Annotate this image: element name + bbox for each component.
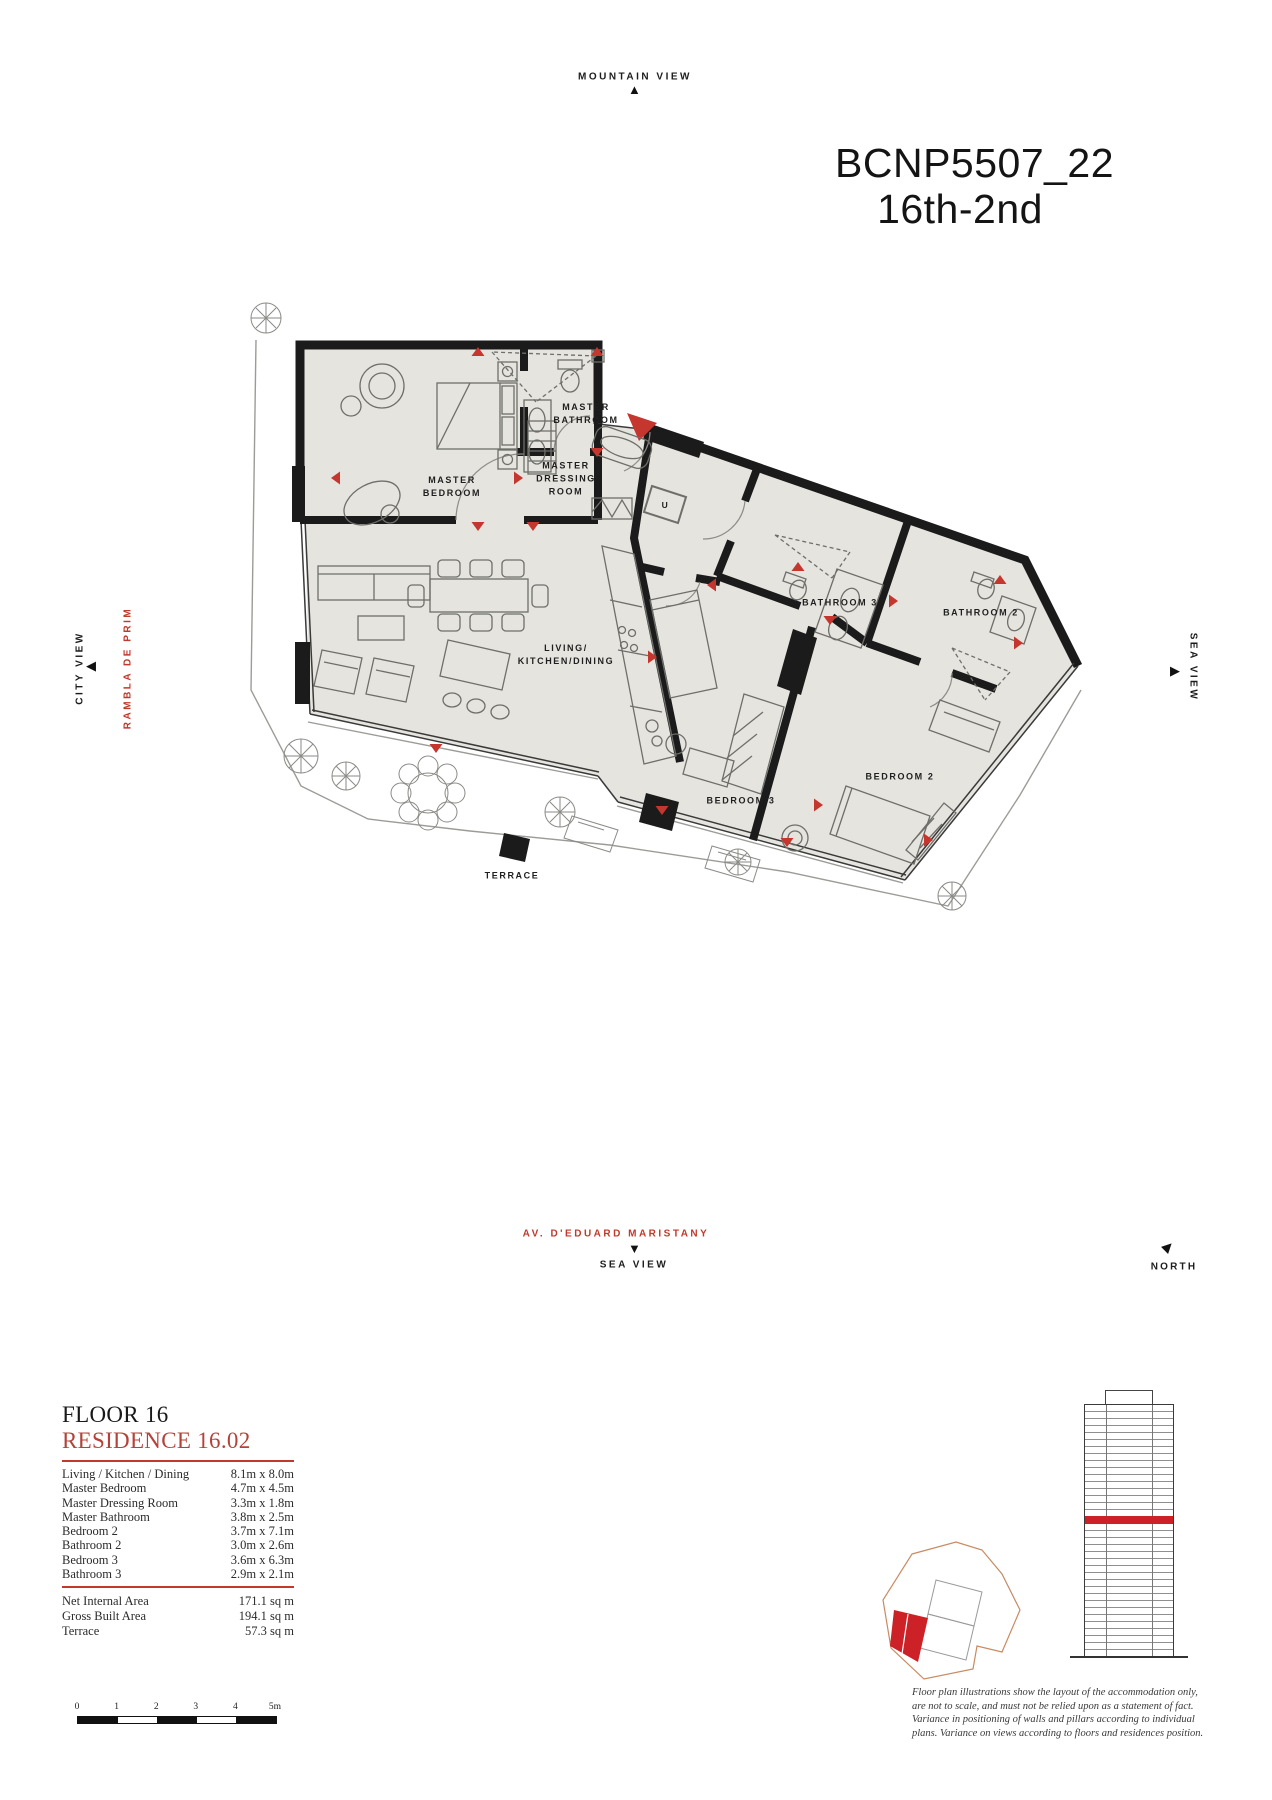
room-label-master-dressing-room: MASTER DRESSING ROOM [536, 459, 596, 498]
residence-info-panel: FLOOR 16 RESIDENCE 16.02 Living / Kitche… [62, 1402, 294, 1639]
disclaimer-text: Floor plan illustrations show the layout… [912, 1686, 1214, 1741]
scale-bar: 0 1 2 3 4 5m [77, 1702, 275, 1726]
tower-body [1084, 1404, 1174, 1658]
room-label-master-bathroom: MASTER BATHROOM [553, 401, 618, 427]
av-eduard-maristany-label: AV. D'EDUARD MARISTANY [523, 1229, 710, 1240]
area-row: Gross Built Area194.1 sq m [62, 1609, 294, 1624]
room-label-terrace: TERRACE [485, 869, 540, 882]
room-label-living-kitchen-dining: LIVING/ KITCHEN/DINING [518, 642, 614, 668]
sea-view-bottom-arrow-icon: ▼ [628, 1242, 641, 1255]
dimension-table: Living / Kitchen / Dining8.1m x 8.0m Mas… [62, 1467, 294, 1581]
tower-base [1070, 1656, 1188, 1658]
site-plan-key [878, 1540, 1028, 1690]
scale-bar-segments [77, 1716, 277, 1724]
area-row: Net Internal Area171.1 sq m [62, 1594, 294, 1609]
dimension-row: Master Bathroom3.8m x 2.5m [62, 1510, 294, 1524]
area-table: Net Internal Area171.1 sq m Gross Built … [62, 1594, 294, 1638]
divider-top [62, 1460, 294, 1462]
building-elevation [1076, 1390, 1182, 1672]
room-label-master-bedroom: MASTER BEDROOM [423, 474, 481, 500]
residence-heading: RESIDENCE 16.02 [62, 1428, 294, 1454]
room-label-bathroom-3: BATHROOM 3 [802, 596, 878, 609]
room-label-bathroom-2: BATHROOM 2 [943, 606, 1019, 619]
dimension-row: Bathroom 32.9m x 2.1m [62, 1567, 294, 1581]
dimension-row: Bedroom 33.6m x 6.3m [62, 1553, 294, 1567]
floor-16-highlight [1085, 1516, 1173, 1524]
sea-view-bottom-label: SEA VIEW [600, 1260, 669, 1271]
divider-bottom [62, 1586, 294, 1588]
room-label-utility: U [662, 499, 669, 511]
floorplan-page: MOUNTAIN VIEW ▲ BCNP5507_22 16th-2nd CIT… [0, 0, 1272, 1800]
room-label-bedroom-2: BEDROOM 2 [866, 770, 935, 783]
dimension-row: Bedroom 23.7m x 7.1m [62, 1524, 294, 1538]
dimension-row: Living / Kitchen / Dining8.1m x 8.0m [62, 1467, 294, 1481]
dimension-row: Master Dressing Room3.3m x 1.8m [62, 1496, 294, 1510]
north-label: NORTH [1151, 1262, 1198, 1273]
dimension-row: Master Bedroom4.7m x 4.5m [62, 1481, 294, 1495]
room-label-bedroom-3: BEDROOM 3 [707, 794, 776, 807]
dimension-row: Bathroom 23.0m x 2.6m [62, 1538, 294, 1552]
area-row: Terrace57.3 sq m [62, 1624, 294, 1639]
residence-location-highlight [890, 1610, 928, 1662]
floor-heading: FLOOR 16 [62, 1402, 294, 1428]
